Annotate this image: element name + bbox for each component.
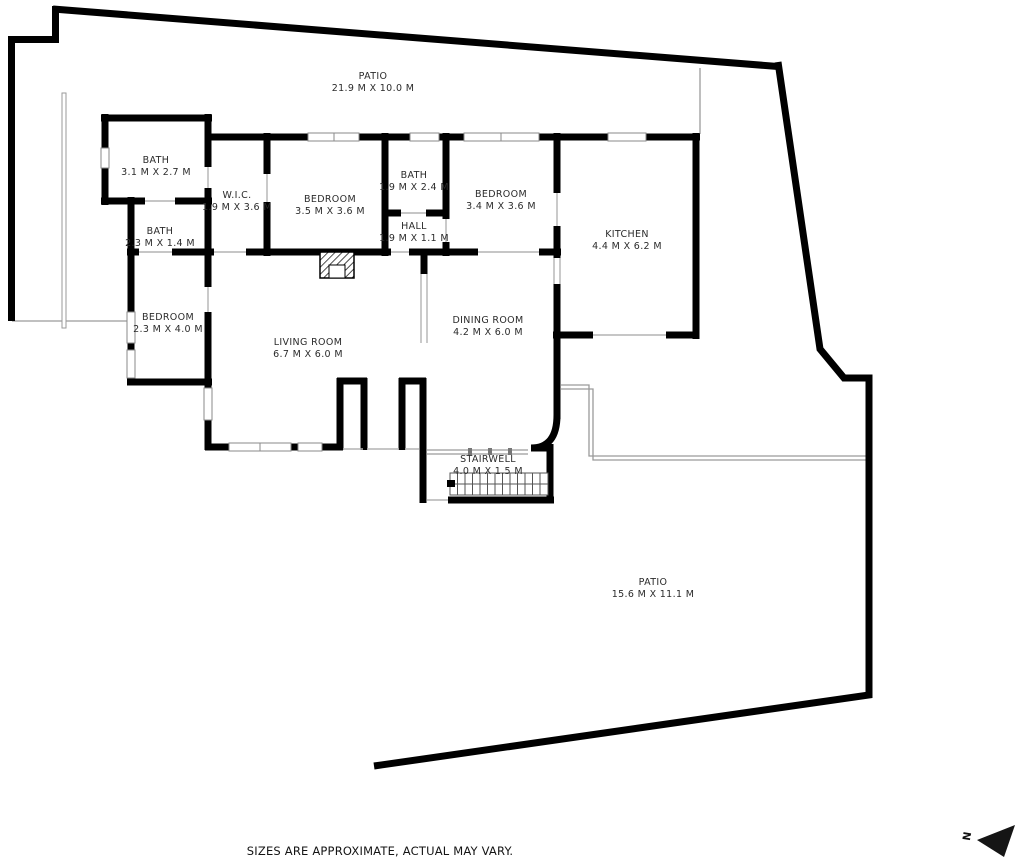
room-dims: 4.0 M X 1.5 M <box>453 466 523 478</box>
room-dims: 2.3 M X 4.0 M <box>133 324 203 336</box>
room-name: PATIO <box>332 71 415 83</box>
room-name: KITCHEN <box>592 229 662 241</box>
room-name: BATH <box>125 226 195 238</box>
north-label: N <box>959 831 972 842</box>
room-dims: 3.5 M X 3.6 M <box>295 206 365 218</box>
room-label-hall: HALL 1.9 M X 1.1 M <box>379 221 449 245</box>
room-name: W.I.C. <box>202 190 272 202</box>
room-label-bedroom-2: BEDROOM 3.4 M X 3.6 M <box>466 189 536 213</box>
windows <box>101 133 646 451</box>
room-name: HALL <box>379 221 449 233</box>
room-dims: 3.4 M X 3.6 M <box>466 201 536 213</box>
room-dims: 6.7 M X 6.0 M <box>273 349 343 361</box>
room-name: BEDROOM <box>295 194 365 206</box>
room-name: LIVING ROOM <box>273 337 343 349</box>
room-label-dining-room: DINING ROOM 4.2 M X 6.0 M <box>452 315 523 339</box>
patio-boundary-lines <box>12 68 868 460</box>
north-arrow-icon <box>977 825 1015 857</box>
room-name: PATIO <box>612 577 695 589</box>
fireplace-icon <box>320 252 354 278</box>
room-label-bedroom-3: BEDROOM 2.3 M X 4.0 M <box>133 312 203 336</box>
room-name: BATH <box>121 155 191 167</box>
room-label-patio-upper: PATIO 21.9 M X 10.0 M <box>332 71 415 95</box>
fence-line <box>62 93 66 328</box>
room-dims: 2.3 M X 1.4 M <box>125 238 195 250</box>
room-name: BEDROOM <box>466 189 536 201</box>
room-label-bath-3: BATH 1.9 M X 2.4 M <box>379 170 449 194</box>
room-dims: 1.9 M X 3.6 M <box>202 202 272 214</box>
room-dims: 21.9 M X 10.0 M <box>332 83 415 95</box>
room-name: BATH <box>379 170 449 182</box>
room-dims: 15.6 M X 11.1 M <box>612 589 695 601</box>
room-name: STAIRWELL <box>453 454 523 466</box>
room-dims: 4.4 M X 6.2 M <box>592 241 662 253</box>
room-label-patio-lower: PATIO 15.6 M X 11.1 M <box>612 577 695 601</box>
room-dims: 4.2 M X 6.0 M <box>452 327 523 339</box>
room-dims: 3.1 M X 2.7 M <box>121 167 191 179</box>
room-dims: 1.9 M X 2.4 M <box>379 182 449 194</box>
floor-plan: PATIO 21.9 M X 10.0 M BATH 3.1 M X 2.7 M… <box>0 0 1018 864</box>
room-label-stairwell: STAIRWELL 4.0 M X 1.5 M <box>453 454 523 478</box>
disclaimer-text: SIZES ARE APPROXIMATE, ACTUAL MAY VARY. <box>247 844 513 858</box>
room-name: DINING ROOM <box>452 315 523 327</box>
room-dims: 1.9 M X 1.1 M <box>379 233 449 245</box>
room-label-living-room: LIVING ROOM 6.7 M X 6.0 M <box>273 337 343 361</box>
room-label-wic: W.I.C. 1.9 M X 3.6 M <box>202 190 272 214</box>
room-label-bath-2: BATH 2.3 M X 1.4 M <box>125 226 195 250</box>
floor-plan-drawing <box>0 0 1018 864</box>
room-name: BEDROOM <box>133 312 203 324</box>
room-label-kitchen: KITCHEN 4.4 M X 6.2 M <box>592 229 662 253</box>
room-label-bath-1: BATH 3.1 M X 2.7 M <box>121 155 191 179</box>
room-label-bedroom-1: BEDROOM 3.5 M X 3.6 M <box>295 194 365 218</box>
